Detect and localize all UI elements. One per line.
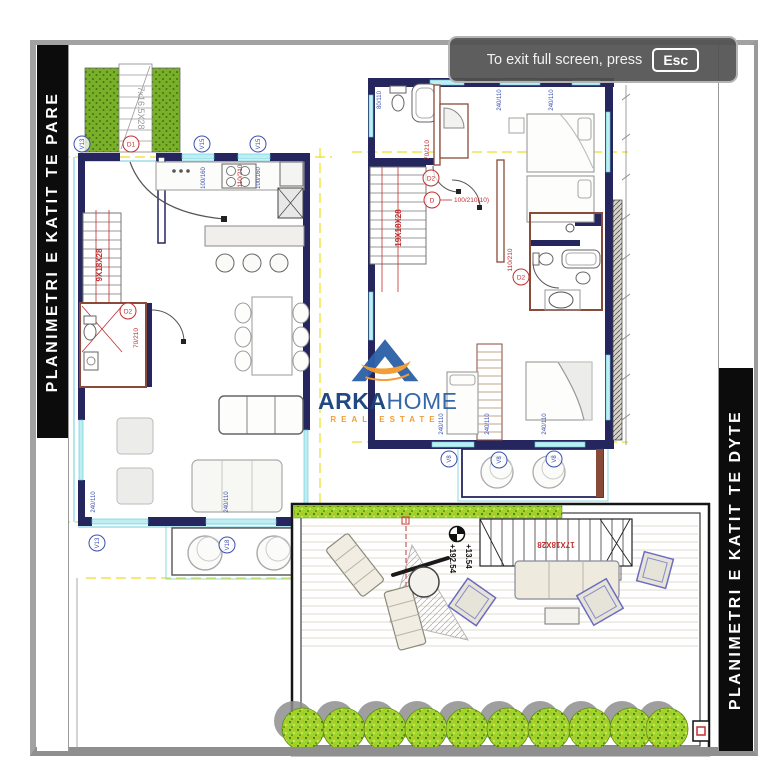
title-bar-second-floor: PLANIMETRI E KATIT TE DYTE [719,368,753,751]
brand-tagline: REAL ESTATE [318,415,452,424]
fullscreen-image-viewer: 7x16.5X28 [0,0,768,768]
arkahome-logo-icon [350,333,420,389]
first-floor-title: PLANIMETRI E KATIT TE PARE [44,91,62,392]
arkahome-logo: ARKAHOME REAL ESTATE [318,333,452,424]
fullscreen-exit-notification: To exit full screen, press Esc [448,36,738,83]
title-bar-first-floor: PLANIMETRI E KATIT TE PARE [37,45,68,438]
brand-name-secondary: HOME [386,388,457,414]
esc-key: Esc [652,48,699,72]
arkahome-logo-text: ARKAHOME [318,389,452,413]
notification-message: To exit full screen, press [487,52,643,68]
second-floor-title: PLANIMETRI E KATIT TE DYTE [727,409,745,709]
brand-name-primary: ARKA [318,388,386,414]
